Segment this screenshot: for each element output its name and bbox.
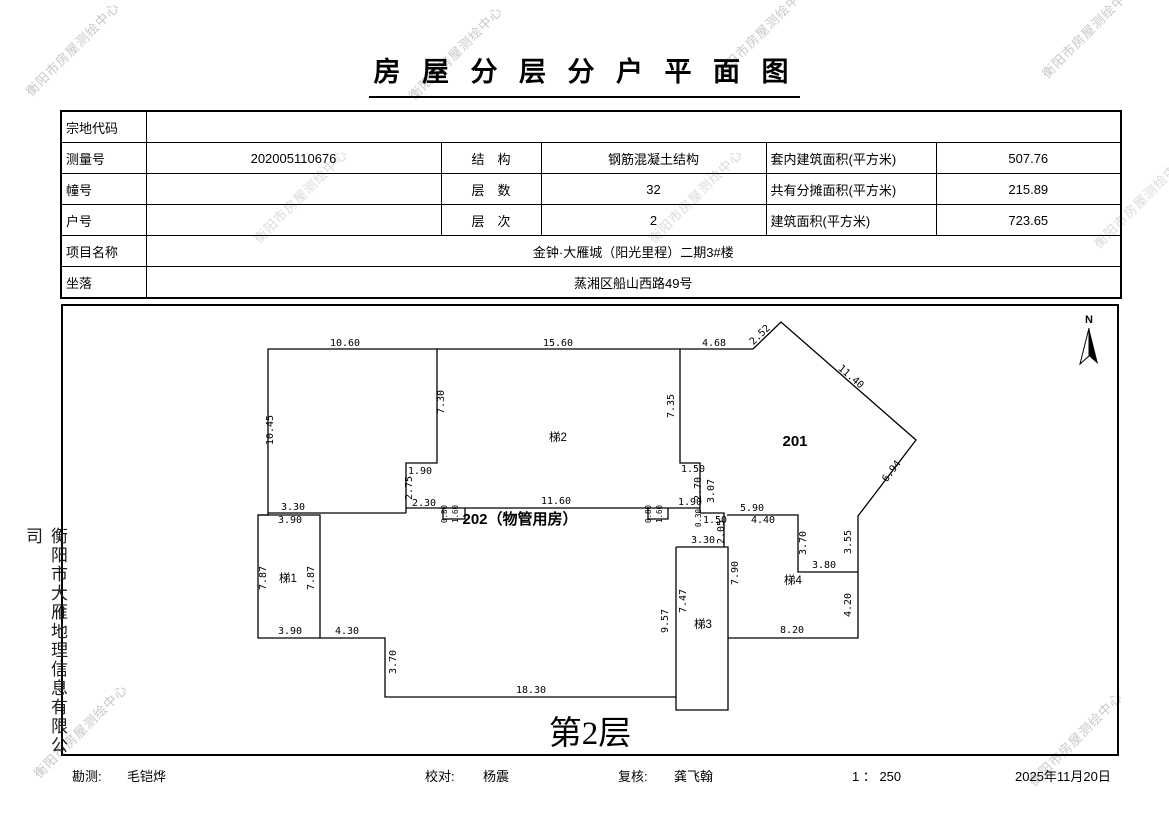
room-label: 202（物管用房） — [462, 510, 577, 528]
dimension-label: 18.30 — [516, 685, 546, 696]
dimension-label: 3.80 — [812, 560, 836, 571]
dimension-label: 9.57 — [660, 609, 671, 633]
survey-label: 勘测: — [72, 766, 102, 785]
dimension-label: 2.05 — [716, 520, 727, 544]
exterior-wall-outline — [258, 322, 916, 710]
floorplan-drawing: N 201202（物管用房）梯1梯2梯3梯4 10.6015.604.682.5… — [0, 0, 1169, 827]
dimension-label: 3.07 — [706, 479, 717, 503]
dimension-label: 1.60 — [451, 504, 460, 523]
survey-value: 毛铠烨 — [127, 766, 166, 785]
dimension-label: 0.30 — [694, 508, 703, 527]
floorplan-document-page: { "title": "房 屋 分 层 分 户 平 面 图", "waterma… — [0, 0, 1169, 827]
proofread-label: 校对: — [425, 766, 455, 785]
dimension-label: 5.90 — [740, 503, 764, 514]
dimension-label: 3.90 — [278, 626, 302, 637]
dimension-label: 11.40 — [836, 363, 866, 391]
dimension-label: 4.68 — [702, 338, 726, 349]
review-value: 龚飞翰 — [674, 766, 713, 785]
date: 2025年11月20日 — [1015, 766, 1111, 785]
dimension-label: 6.94 — [880, 459, 903, 485]
dimension-label: 3.90 — [278, 515, 302, 526]
dimension-label: 3.55 — [843, 530, 854, 554]
map-scale: 1 ： 250 — [852, 766, 901, 785]
proofread-value: 杨震 — [483, 766, 509, 785]
room-label: 梯2 — [549, 431, 567, 444]
dimension-label: 7.87 — [306, 566, 317, 590]
dimension-label: 7.87 — [258, 566, 269, 590]
dimension-label: 1.90 — [408, 466, 432, 477]
dimension-label: 3.70 — [388, 650, 399, 674]
north-arrow: N — [1080, 314, 1098, 364]
dimension-label: 8.20 — [780, 625, 804, 636]
floor-caption: 第2层 — [480, 706, 700, 754]
north-arrow-left-half — [1080, 328, 1089, 364]
dimension-label: 7.47 — [678, 589, 689, 613]
review-label: 复核: — [618, 766, 648, 785]
dimension-label: 2.52 — [748, 323, 773, 348]
room-label: 201 — [782, 433, 807, 450]
dimension-label: 4.20 — [843, 593, 854, 617]
dimension-label: 7.90 — [730, 561, 741, 585]
stair4-walls — [727, 515, 858, 572]
room-label: 梯1 — [279, 572, 297, 585]
dimension-label: 11.60 — [541, 496, 571, 507]
dimension-label: 0.80 — [440, 504, 449, 523]
dimension-label: 2.30 — [412, 498, 436, 509]
dimension-label: 15.60 — [543, 338, 573, 349]
dimension-label: 4.30 — [335, 626, 359, 637]
side-company-name: 衡阳市大雁地理信息有限公司 — [20, 527, 70, 767]
dimension-label: 0.80 — [644, 504, 653, 523]
page-title: 房 屋 分 层 分 户 平 面 图 — [369, 50, 799, 98]
dimension-label: 7.30 — [436, 390, 447, 414]
room-label: 梯4 — [784, 574, 802, 587]
dimension-label: 4.40 — [751, 515, 775, 526]
dimension-label: 1.60 — [655, 504, 664, 523]
room-label: 梯3 — [694, 618, 712, 631]
drawing-frame — [62, 305, 1118, 755]
dimension-label: 1.90 — [678, 497, 702, 508]
dimension-label-layer: 10.6015.604.682.5211.406.9410.457.307.35… — [258, 323, 904, 696]
dimension-label: 3.70 — [798, 531, 809, 555]
north-arrow-right-half — [1089, 328, 1098, 364]
dimension-label: 2.75 — [404, 476, 415, 500]
dimension-label: 3.30 — [281, 502, 305, 513]
dimension-label: 7.35 — [666, 394, 677, 418]
dimension-label: 3.30 — [691, 535, 715, 546]
footer-row: 勘测: 毛铠烨 校对: 杨震 复核: 龚飞翰 1 ： 250 2025年11月2… — [0, 766, 1169, 790]
dimension-label: 1.50 — [681, 464, 705, 475]
dimension-label: 10.45 — [265, 415, 276, 445]
north-label: N — [1085, 314, 1093, 326]
dimension-label: 10.60 — [330, 338, 360, 349]
page-title-wrap: 房 屋 分 层 分 户 平 面 图 — [0, 50, 1169, 98]
